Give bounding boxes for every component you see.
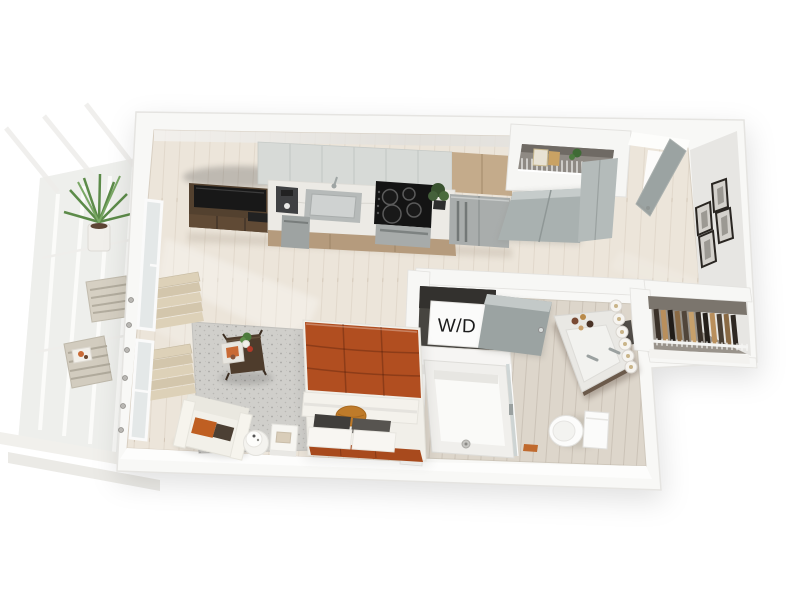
white-pillow	[352, 430, 396, 452]
white-pillow	[307, 427, 352, 449]
floor-plan-render: W/D	[0, 0, 800, 600]
bathroom-door	[478, 294, 552, 358]
burner	[403, 188, 415, 200]
bed	[300, 320, 430, 466]
shelf-box	[548, 151, 560, 166]
burner	[383, 190, 398, 205]
round-lamp-table	[244, 431, 269, 456]
door-handle	[646, 206, 650, 210]
oven-front	[375, 224, 431, 248]
shower-glass-handle	[509, 404, 513, 415]
burner	[407, 203, 421, 217]
bath-mat	[523, 444, 538, 452]
apartment-unit: W/D	[117, 112, 757, 490]
cosmetic-bottle	[587, 321, 594, 328]
door-handle	[539, 328, 544, 333]
floor-plan-stage: W/D	[0, 0, 800, 600]
table-bowl	[247, 346, 253, 352]
cosmetic-bottle	[572, 318, 579, 325]
side-table	[270, 424, 298, 457]
outdoor-bench-2	[64, 336, 112, 388]
table-lamp	[246, 431, 262, 447]
coffee-maker	[276, 186, 298, 214]
toilet-tank	[583, 411, 609, 449]
cosmetic-bottle	[579, 326, 584, 331]
cooktop	[374, 181, 433, 228]
bed-duvet	[305, 322, 421, 398]
dishwasher	[281, 215, 310, 249]
book	[276, 432, 291, 443]
shower	[424, 360, 518, 458]
cosmetic-bottle	[580, 314, 586, 320]
shelf-box	[533, 149, 548, 166]
washer-dryer-label: W/D	[437, 315, 476, 337]
burner	[383, 205, 401, 223]
